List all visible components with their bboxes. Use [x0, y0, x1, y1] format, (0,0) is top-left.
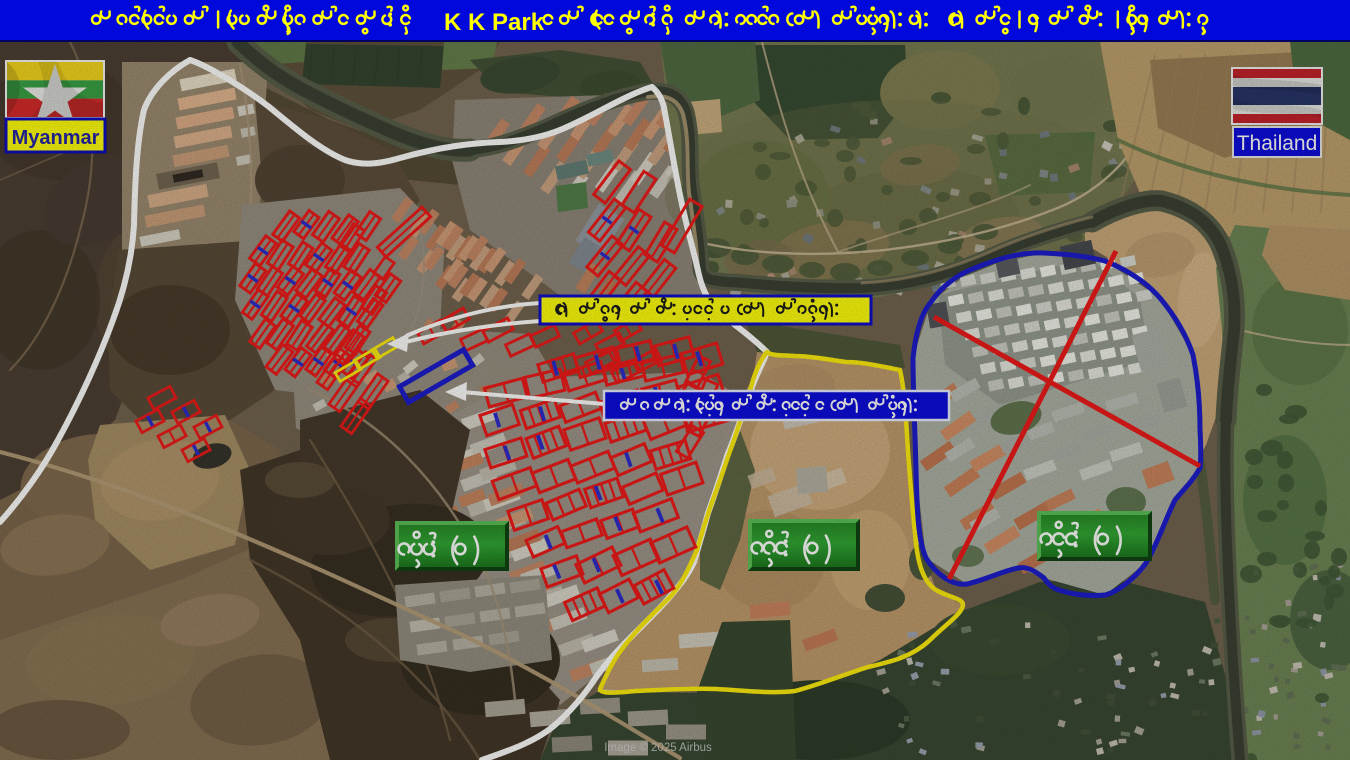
svg-text:K K Park: K K Park	[444, 9, 545, 36]
